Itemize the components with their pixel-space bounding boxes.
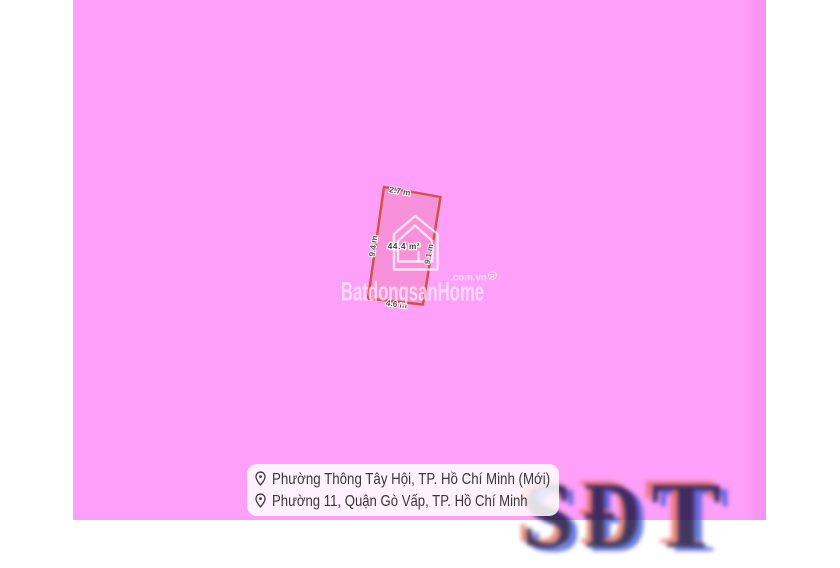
svg-text:44.4 m²: 44.4 m² xyxy=(388,242,420,251)
svg-text:R: R xyxy=(490,274,495,281)
svg-text:.com.vn: .com.vn xyxy=(450,272,486,283)
